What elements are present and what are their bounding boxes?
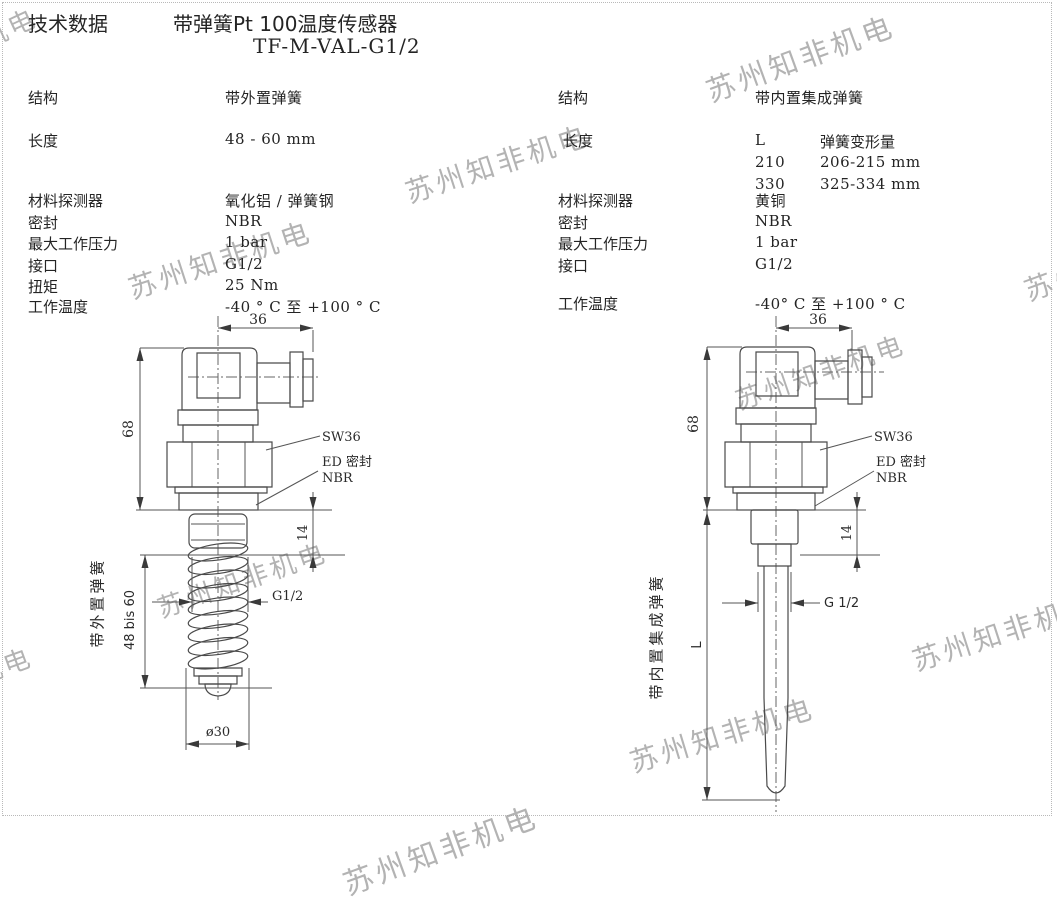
dim-68-label: 68 xyxy=(686,415,702,433)
dim-36-label: 36 xyxy=(249,312,267,328)
spec-value: 1 bar xyxy=(225,233,268,251)
dim-14-label: 14 xyxy=(296,525,311,542)
connector-knurled-screw xyxy=(756,352,798,396)
dim-line-68 xyxy=(703,347,866,510)
spec-label: 结构 xyxy=(28,87,58,108)
dim-probe-length-label: L xyxy=(690,641,705,649)
wrench-leader xyxy=(266,436,320,450)
spec-label: 最大工作压力 xyxy=(28,233,118,254)
thread-size-label: G 1/2 xyxy=(824,596,859,611)
seal-leader xyxy=(256,471,318,505)
seal-note-line2: NBR xyxy=(322,471,354,486)
drawing-left-caption: 带外置弹簧 xyxy=(87,548,108,658)
spec-value: 1 bar xyxy=(755,233,798,251)
spec-value: G1/2 xyxy=(755,255,793,273)
spec-value: 48 - 60 mm xyxy=(225,130,316,148)
watermark: 苏州知非机电 xyxy=(0,637,38,733)
spec-label: 接口 xyxy=(558,255,588,276)
thread-size-label: G1/2 xyxy=(272,589,303,604)
spec-label: 工作温度 xyxy=(28,296,88,317)
spec-label: 结构 xyxy=(558,87,588,108)
spec-value: 氧化铝 / 弹簧钢 xyxy=(225,190,334,211)
cable-gland-neck xyxy=(815,361,848,399)
drawing-right-caption: 带内置集成弹簧 xyxy=(646,582,667,700)
model-number: TF-M-VAL-G1/2 xyxy=(253,34,421,58)
cable-gland-cap xyxy=(862,357,872,397)
spec-value: 25 Nm xyxy=(225,276,279,294)
length-table-cell: 325-334 mm xyxy=(820,175,921,193)
wrench-size-label: SW36 xyxy=(322,430,361,445)
spec-label: 长度 xyxy=(563,130,593,151)
spec-value: NBR xyxy=(755,212,792,230)
length-table-col1-header: L xyxy=(755,131,765,149)
seal-note-line1: ED 密封 xyxy=(322,454,372,470)
cable-gland-ring xyxy=(290,352,303,407)
dim-14-label: 14 xyxy=(840,525,855,542)
connector-body xyxy=(740,347,815,408)
length-table-col2-header: 弹簧变形量 xyxy=(820,131,895,152)
dim-36-label: 36 xyxy=(809,312,827,328)
drawing-internal-spring: 36 68 SW36 ED 密封 NBR 14 G 1/2 L xyxy=(630,308,960,820)
seal-note-line1: ED 密封 xyxy=(876,454,926,470)
spec-label: 接口 xyxy=(28,255,58,276)
dim-line-thread xyxy=(152,557,268,612)
watermark: 苏州知非机电 xyxy=(1018,206,1057,309)
spec-label: 工作温度 xyxy=(558,293,618,314)
length-table-cell: 206-215 mm xyxy=(820,153,921,171)
spec-label: 长度 xyxy=(28,130,58,151)
spec-label: 密封 xyxy=(558,212,588,233)
wrench-leader xyxy=(820,436,872,450)
spec-value: NBR xyxy=(225,212,262,230)
connector-body xyxy=(182,348,257,410)
cable-gland-cap xyxy=(303,359,313,401)
hex-nut xyxy=(167,442,272,487)
dim-68-label: 68 xyxy=(121,420,137,438)
spec-value: G1/2 xyxy=(225,255,263,273)
seal-leader xyxy=(815,471,874,506)
spec-label: 密封 xyxy=(28,212,58,233)
datasheet-page: { "watermark": { "text": "苏州知非机电" }, "he… xyxy=(0,0,1057,820)
spec-value: 带外置弹簧 xyxy=(225,87,303,108)
seal-washer xyxy=(175,487,267,493)
watermark: 苏州知非机电 xyxy=(123,210,318,307)
wrench-size-label: SW36 xyxy=(874,430,913,445)
doc-type-title: 技术数据 xyxy=(28,8,108,37)
spec-value: 黄铜 xyxy=(755,190,786,211)
length-table-cell: 210 xyxy=(755,153,785,171)
drawing-external-spring: 36 68 SW36 ED 密封 NBR 14 xyxy=(80,308,380,778)
spec-label: 材料探测器 xyxy=(558,190,633,211)
thread-nipple xyxy=(751,510,798,544)
cable-gland-neck xyxy=(257,363,290,403)
spec-value: 带内置集成弹簧 xyxy=(755,87,864,108)
dim-line-thread xyxy=(722,572,820,612)
spec-label: 最大工作压力 xyxy=(558,233,648,254)
spec-label: 扭矩 xyxy=(28,276,58,297)
watermark: 苏州知非机电 xyxy=(336,792,544,904)
cable-gland-ring xyxy=(848,350,862,404)
thread-nipple-step xyxy=(758,544,791,566)
dim-spring-length-label: 48 bis 60 xyxy=(123,590,138,650)
spec-label: 材料探测器 xyxy=(28,190,103,211)
seal-note-line2: NBR xyxy=(876,471,908,486)
dim-diameter-label: ø30 xyxy=(206,725,230,740)
page-title: 带弹簧Pt 100温度传感器 xyxy=(173,8,397,37)
dim-line-probe-length xyxy=(702,510,780,800)
seal-washer xyxy=(733,487,823,493)
